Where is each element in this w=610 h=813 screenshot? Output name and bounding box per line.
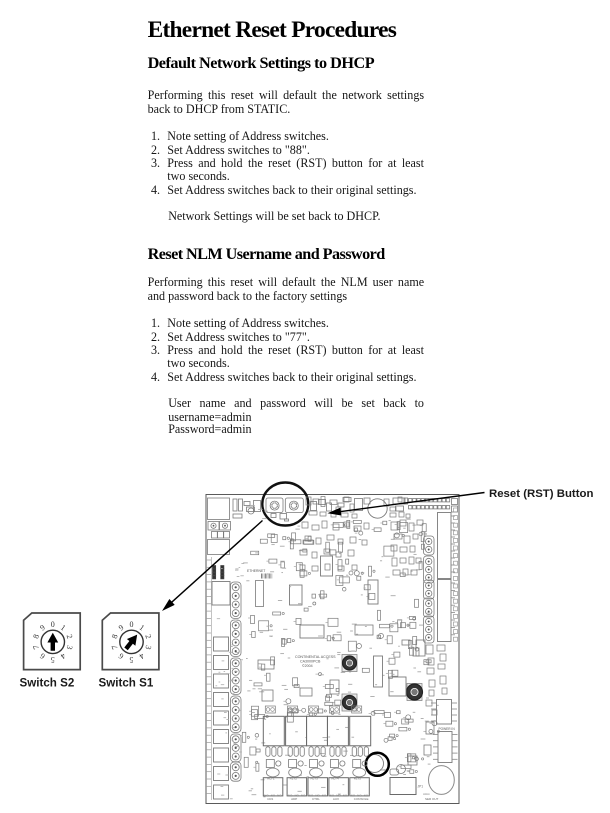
svg-text:JP1: JP1 [418, 785, 424, 789]
svg-text:CONTINENTAL ACCESS: CONTINENTAL ACCESS [295, 655, 336, 659]
svg-text:5: 5 [51, 655, 55, 664]
svg-text:RLY3: RLY3 [311, 777, 319, 781]
svg-text:0: 0 [51, 620, 55, 629]
svg-text:ETHERNET: ETHERNET [247, 569, 265, 573]
svg-text:CR1: CR1 [267, 797, 273, 801]
svg-text:5: 5 [130, 655, 134, 664]
svg-text:Reset (RST) Button: Reset (RST) Button [489, 488, 593, 500]
svg-text:©2004: ©2004 [302, 664, 313, 668]
svg-text:RLY5: RLY5 [354, 777, 362, 781]
svg-text:CONSOLE: CONSOLE [354, 797, 369, 801]
svg-text:RLY1: RLY1 [267, 777, 275, 781]
svg-text:CTRL: CTRL [312, 797, 320, 801]
svg-text:SER OUT: SER OUT [425, 797, 439, 801]
svg-text:ADP: ADP [291, 797, 297, 801]
svg-text:POWER IN: POWER IN [439, 727, 456, 731]
svg-text:RLY2: RLY2 [290, 777, 298, 781]
svg-text:AUX: AUX [333, 797, 339, 801]
svg-text:Switch S1: Switch S1 [99, 677, 154, 690]
svg-text:RLY4: RLY4 [331, 777, 339, 781]
svg-text:Switch S2: Switch S2 [20, 677, 75, 690]
svg-text:CA3000PCB: CA3000PCB [300, 660, 321, 664]
svg-text:0: 0 [130, 620, 134, 629]
